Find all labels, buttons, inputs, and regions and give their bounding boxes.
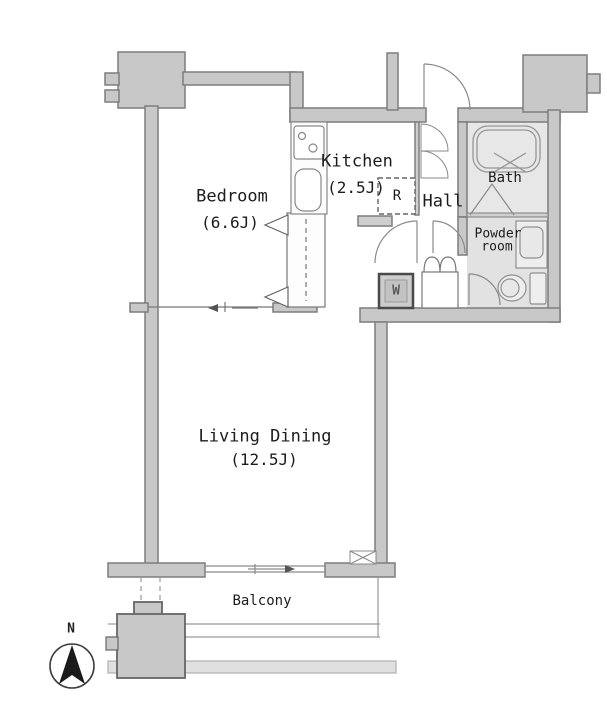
living-dining-label: Living Dining	[198, 429, 331, 446]
washer-label: W	[392, 285, 400, 298]
entry-closet-doors-icon	[421, 124, 448, 178]
bedroom-closet	[265, 213, 325, 307]
refrigerator-label: R	[393, 189, 401, 203]
hall-doors-icon	[375, 221, 465, 263]
north-compass-icon	[50, 644, 94, 688]
bedroom-size-label: (6.6J)	[201, 215, 259, 231]
bath-label: Bath	[488, 171, 522, 185]
balcony-label: Balcony	[232, 594, 291, 608]
stove-burner-icon	[309, 144, 317, 152]
balcony-sliding-window-icon	[205, 564, 325, 574]
north-label: N	[67, 623, 75, 636]
powder-room-label-2: room	[481, 241, 512, 254]
floor-hatch-icon	[350, 551, 376, 564]
kitchen-size-label: (2.5J)	[327, 180, 385, 196]
stove-burner-icon	[299, 133, 306, 140]
floor-plan-drawing	[0, 0, 607, 704]
hall-closet	[422, 257, 458, 308]
kitchen-label: Kitchen	[321, 154, 393, 171]
bedroom-sliding-door	[148, 302, 273, 312]
bedroom-label: Bedroom	[196, 189, 268, 206]
hall-label: Hall	[423, 194, 464, 211]
living-dining-size-label: (12.5J)	[230, 452, 297, 468]
entrance-door-icon	[424, 64, 470, 110]
floor-plan: Bedroom (6.6J) Kitchen (2.5J) Hall Bath …	[0, 0, 607, 704]
bottom-pillar	[106, 602, 185, 678]
kitchen-sink-icon	[295, 169, 321, 211]
